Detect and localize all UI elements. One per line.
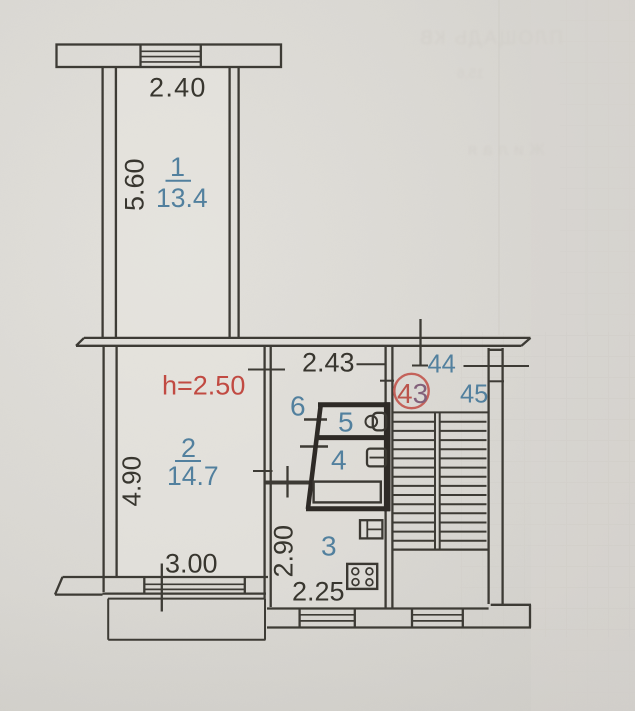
svg-text:1: 1: [170, 152, 185, 182]
svg-text:5.60: 5.60: [120, 158, 150, 211]
svg-text:6: 6: [290, 391, 306, 422]
svg-text:14.7: 14.7: [167, 461, 219, 491]
svg-text:3.00: 3.00: [165, 549, 218, 579]
svg-text:2.25: 2.25: [292, 577, 345, 607]
svg-text:43: 43: [397, 378, 428, 409]
svg-text:15,6: 15,6: [457, 65, 484, 81]
svg-text:45: 45: [460, 381, 488, 409]
svg-text:5: 5: [338, 407, 354, 438]
svg-text:2.40: 2.40: [149, 73, 207, 103]
svg-text:h=2.50: h=2.50: [162, 371, 245, 401]
svg-text:13.4: 13.4: [156, 183, 208, 213]
svg-text:ПЛОЩАДЬ КВ: ПЛОЩАДЬ КВ: [420, 28, 563, 49]
svg-text:4: 4: [331, 445, 347, 476]
svg-text:2: 2: [181, 433, 196, 463]
svg-text:4.90: 4.90: [117, 456, 147, 507]
svg-text:3: 3: [321, 531, 337, 562]
svg-text:2.90: 2.90: [269, 525, 299, 578]
svg-text:44: 44: [428, 351, 456, 379]
svg-text:2.43: 2.43: [302, 348, 355, 378]
